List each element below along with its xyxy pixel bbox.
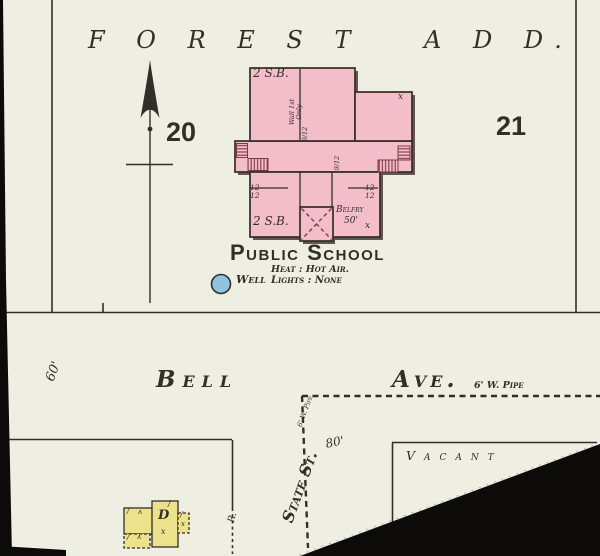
sanborn-map-sheet: F O R E S T A D D. 20 21 2 S.B. 2 S.B. W… [0, 0, 600, 556]
north-arrow-icon [126, 60, 173, 303]
torn-corner [300, 444, 600, 556]
dwelling-building [124, 501, 189, 548]
map-linework [0, 0, 600, 556]
well-icon [212, 275, 231, 294]
school-building [235, 68, 415, 244]
